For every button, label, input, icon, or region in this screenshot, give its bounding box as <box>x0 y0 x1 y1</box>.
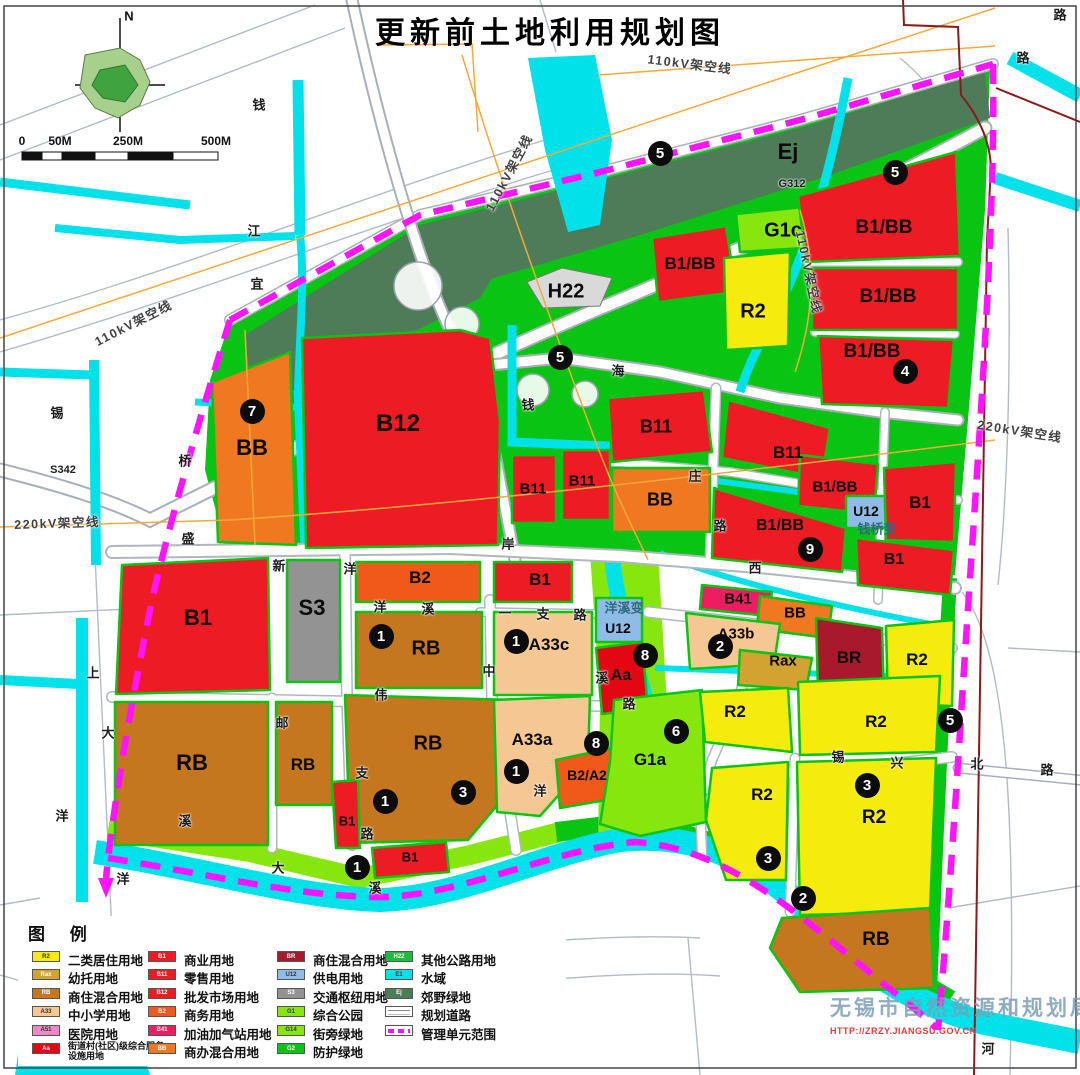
legend-color-swatch: A33 <box>32 1006 60 1017</box>
compass-rose <box>75 18 165 132</box>
legend-color-swatch: Rax <box>32 969 60 980</box>
legend-label: 加油加气站用地 <box>184 1024 272 1043</box>
legend-color-swatch: E1 <box>385 969 413 980</box>
legend-color-swatch: A51 <box>32 1025 60 1036</box>
legend-label: 街旁绿地 <box>313 1024 363 1043</box>
legend-label: 零售用地 <box>184 968 234 987</box>
legend-label: 规划道路 <box>421 1005 471 1024</box>
legend-color-swatch: G2 <box>277 1043 305 1054</box>
legend-label: 医院用地 <box>68 1024 118 1043</box>
legend: 图 例 R2二类居住用地Rax幼托用地RB商住混合用地A33中小学用地A51医院… <box>18 916 566 1066</box>
legend-color-swatch: BB <box>148 1043 176 1054</box>
legend-label: 商业用地 <box>184 950 234 969</box>
legend-color-swatch: B12 <box>148 988 176 999</box>
scale-bar-graphic <box>22 152 218 160</box>
north-label: N <box>124 9 133 24</box>
legend-road-swatch <box>385 1006 413 1017</box>
legend-color-swatch: G14 <box>277 1025 305 1036</box>
legend-label: 交通枢纽用地 <box>313 987 388 1006</box>
legend-color-swatch: R2 <box>32 951 60 962</box>
legend-color-swatch: G1 <box>277 1006 305 1017</box>
legend-item: 管理单元范围 <box>385 1024 413 1040</box>
legend-label: 商务用地 <box>184 1005 234 1024</box>
legend-label: 供电用地 <box>313 968 363 987</box>
legend-label: 二类居住用地 <box>68 950 143 969</box>
legend-label: 郊野绿地 <box>421 987 471 1006</box>
legend-color-swatch: H22 <box>385 951 413 962</box>
legend-label: 管理单元范围 <box>421 1024 496 1043</box>
legend-color-swatch: U12 <box>277 969 305 980</box>
legend-label: 批发市场用地 <box>184 987 259 1006</box>
legend-color-swatch: B11 <box>148 969 176 980</box>
legend-label: 防护绿地 <box>313 1042 363 1061</box>
legend-color-swatch: B41 <box>148 1025 176 1036</box>
legend-color-swatch: Aa <box>32 1043 60 1054</box>
legend-label: 商住混合用地 <box>68 987 143 1006</box>
legend-color-swatch: Ej <box>385 988 413 999</box>
map-title: 更新前土地利用规划图 <box>375 8 725 52</box>
watermark-url: HTTP://ZRZY.JIANGSU.GOV.CN <box>830 1026 1080 1036</box>
legend-label: 商办混合用地 <box>184 1042 259 1061</box>
boundary-arrow <box>98 878 114 898</box>
legend-label: 水域 <box>421 968 446 987</box>
map-canvas <box>0 0 1080 1075</box>
legend-color-swatch: BR <box>277 951 305 962</box>
legend-label: 幼托用地 <box>68 968 118 987</box>
legend-color-swatch: B1 <box>148 951 176 962</box>
watermark: 无锡市自然资源和规划局 HTTP://ZRZY.JIANGSU.GOV.CN <box>830 992 1080 1036</box>
legend-color-swatch: S3 <box>277 988 305 999</box>
legend-color-swatch: RB <box>32 988 60 999</box>
legend-label: 商住混合用地 <box>313 950 388 969</box>
legend-boundary-swatch <box>385 1025 413 1036</box>
legend-label: 中小学用地 <box>68 1005 131 1024</box>
legend-title: 图 例 <box>28 920 97 945</box>
planning-map-page: 更新前土地利用规划图 N EjG1cB1/BBR2B1/BBB1/BBB1/BB… <box>0 0 1080 1075</box>
legend-label: 综合公园 <box>313 1005 363 1024</box>
legend-color-swatch: B2 <box>148 1006 176 1017</box>
legend-label: 其他公路用地 <box>421 950 496 969</box>
watermark-agency: 无锡市自然资源和规划局 <box>830 992 1080 1022</box>
legend-item: 规划道路 <box>385 1005 413 1021</box>
